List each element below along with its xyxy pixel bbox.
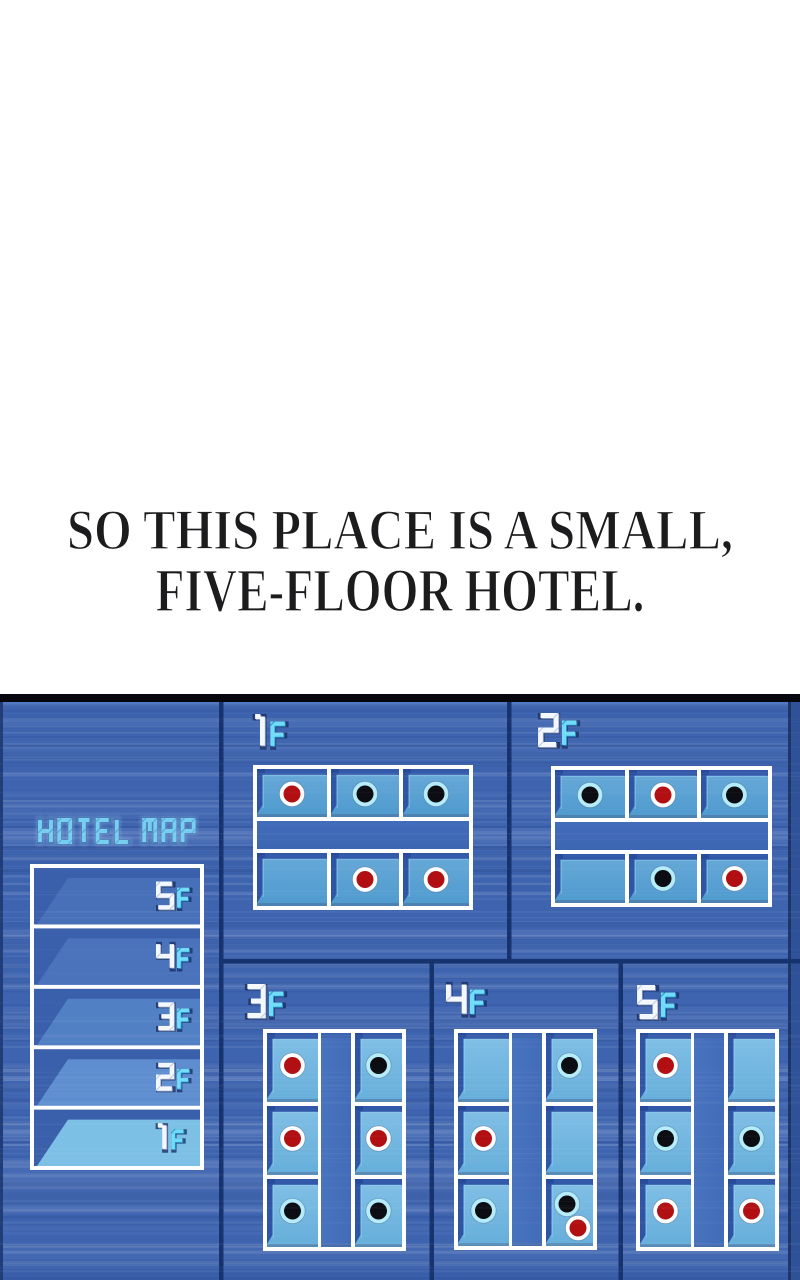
svg-text:SO THIS PLACE IS A SMALL,: SO THIS PLACE IS A SMALL, (67, 499, 733, 562)
svg-text:FIVE-FLOOR HOTEL.: FIVE-FLOOR HOTEL. (156, 558, 645, 625)
